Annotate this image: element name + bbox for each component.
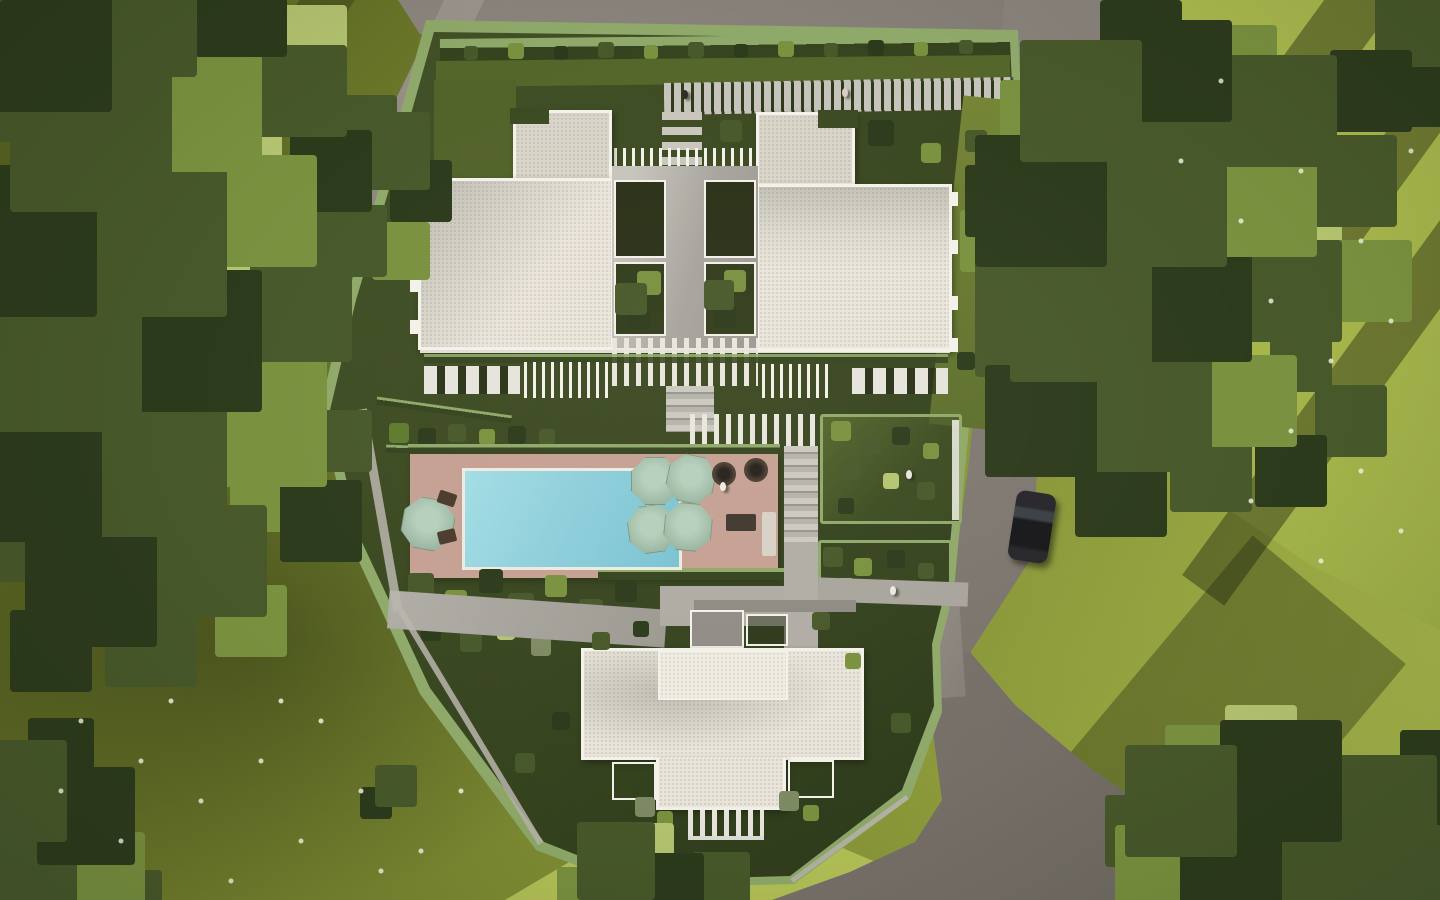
shrub-garden-plants	[0, 0, 2, 2]
scene-vignette	[0, 0, 1440, 900]
north-access-road	[0, 0, 1440, 900]
deck-hedge-south	[598, 568, 788, 580]
building-ne-core-notch	[818, 110, 858, 128]
pool-bench	[762, 512, 776, 556]
tree-shadow-strip	[150, 0, 356, 247]
east-bed-lower-plants	[0, 0, 2, 2]
tree-canopy-south-center	[0, 0, 2, 2]
courtyard-planter-east	[704, 262, 756, 336]
cross-path	[660, 586, 790, 626]
side-lawn-east	[929, 95, 1031, 430]
tree-shadow-strip	[1182, 154, 1440, 605]
courtyard-patio-east	[704, 180, 756, 258]
planter-boxes-nw	[424, 366, 520, 394]
tree-canopy-south-west	[0, 0, 2, 2]
person-boardwalk-1	[682, 90, 688, 99]
pool-table	[726, 514, 756, 531]
fence-nw	[524, 362, 608, 398]
fence-ne	[762, 364, 834, 398]
building-nw-stair-core	[513, 110, 612, 186]
sunlit-lawn-patch-south	[0, 0, 1440, 900]
deck-chair-west-2	[437, 528, 458, 545]
building-ne-roof-shadow	[759, 187, 949, 349]
courtyard-patio-west	[614, 180, 666, 258]
building-nw-roof-shadow	[421, 181, 611, 347]
swimming-pool	[462, 468, 682, 570]
building-s-pavilion-terrace	[746, 614, 788, 646]
person-on-deck	[720, 482, 726, 491]
perimeter-hedge-wall	[0, 0, 1440, 900]
pool-deck	[410, 452, 778, 578]
umbrella-3	[625, 502, 679, 556]
west-bed-hedge-top	[376, 397, 512, 424]
bright-lawn-north-east	[0, 0, 1440, 900]
building-s-pergola	[688, 810, 764, 836]
building-ne-balcony-tabs	[950, 192, 958, 206]
lounge-chair-1	[712, 462, 736, 486]
tree-shadow-strip	[1091, 0, 1398, 356]
lawn-shading-north-west	[0, 120, 420, 480]
building-s-terrace-east	[788, 760, 834, 798]
lawn-shading-south-west	[0, 380, 640, 900]
parked-car	[1007, 489, 1057, 564]
umbrella-4	[662, 501, 714, 553]
east-road	[0, 0, 1440, 900]
deck-chair-west-1	[436, 490, 457, 508]
stepping-stone-path	[662, 112, 702, 170]
tree-canopy-south-east	[0, 0, 2, 2]
planter-boxes-ne	[852, 368, 948, 394]
building-s-roof-south-wing	[656, 758, 786, 810]
deck-hedge-north	[408, 444, 780, 454]
east-path	[818, 577, 969, 606]
building-nw-roof	[418, 178, 614, 350]
east-bed-upper	[820, 414, 962, 524]
courtyard-path	[612, 166, 758, 350]
tree-shadow-strip	[1034, 535, 1406, 900]
building-ne-roof	[756, 184, 952, 352]
building-s-entry-roof	[694, 600, 856, 612]
building-s-roof-shadow	[584, 651, 861, 757]
building-s-roof-upper-section	[658, 650, 788, 700]
building-nw-core-notch	[510, 108, 549, 124]
entry-lawn	[436, 55, 1010, 87]
east-bed-upper-plants	[0, 0, 2, 2]
building-ne-stair-core	[756, 112, 855, 186]
person-boardwalk-2	[842, 88, 848, 97]
building-s-pavilion	[690, 610, 744, 648]
south-east-road	[0, 0, 1440, 900]
building-nw-balcony-tabs	[410, 224, 418, 238]
central-stairs	[666, 386, 714, 432]
west-bed-shrubs	[0, 0, 2, 2]
tree-shadow-strip	[1316, 0, 1440, 254]
south-east-perimeter-wall	[790, 795, 909, 883]
tree-canopy-west	[0, 0, 2, 2]
building-s-planters	[0, 0, 2, 2]
aerial-scene	[0, 0, 1440, 900]
umbrella-1	[631, 457, 679, 505]
terrace-hedge	[424, 354, 948, 363]
terrace-parapet	[420, 348, 950, 353]
wildflowers-south-west	[0, 0, 2, 2]
garden-path-south	[387, 590, 667, 647]
umbrella-5	[398, 494, 458, 554]
person-in-pool	[646, 504, 651, 511]
side-lawn-shrubs	[0, 0, 2, 2]
wildflowers-north-east	[0, 0, 2, 2]
driveway-east	[858, 585, 966, 704]
courtyard-pergola	[612, 338, 758, 386]
stepped-path-lower	[784, 542, 818, 648]
building-s-terrace-rail	[688, 836, 764, 840]
west-bed-hedge-bottom	[386, 445, 582, 460]
entry-lawn-west	[434, 80, 516, 180]
courtyard-gate-fence	[614, 148, 756, 166]
entry-path-north-west	[329, 0, 484, 251]
west-perimeter-wall	[358, 408, 402, 611]
lounge-chair-2	[744, 458, 768, 482]
tree-canopy-east	[0, 0, 2, 2]
person-on-lawn-east	[906, 470, 912, 479]
east-bed-wall	[952, 420, 959, 520]
compound-garden	[0, 0, 1440, 900]
north-hedge-planter	[440, 33, 1010, 65]
person-on-path	[890, 586, 896, 595]
east-bed-lower	[818, 540, 952, 602]
south-west-perimeter-wall	[398, 609, 543, 845]
courtyard-planter-west	[614, 262, 666, 336]
building-s-terrace-west	[612, 762, 656, 800]
umbrella-2	[663, 451, 720, 508]
north-hedge-plants	[0, 0, 2, 2]
slatted-walkway	[690, 414, 818, 450]
entry-boardwalk	[664, 77, 1015, 115]
stepped-path	[784, 446, 818, 542]
building-s-roof	[581, 648, 864, 760]
courtyard-planter-trees	[0, 0, 2, 2]
boulder-north-east	[1152, 2, 1178, 20]
